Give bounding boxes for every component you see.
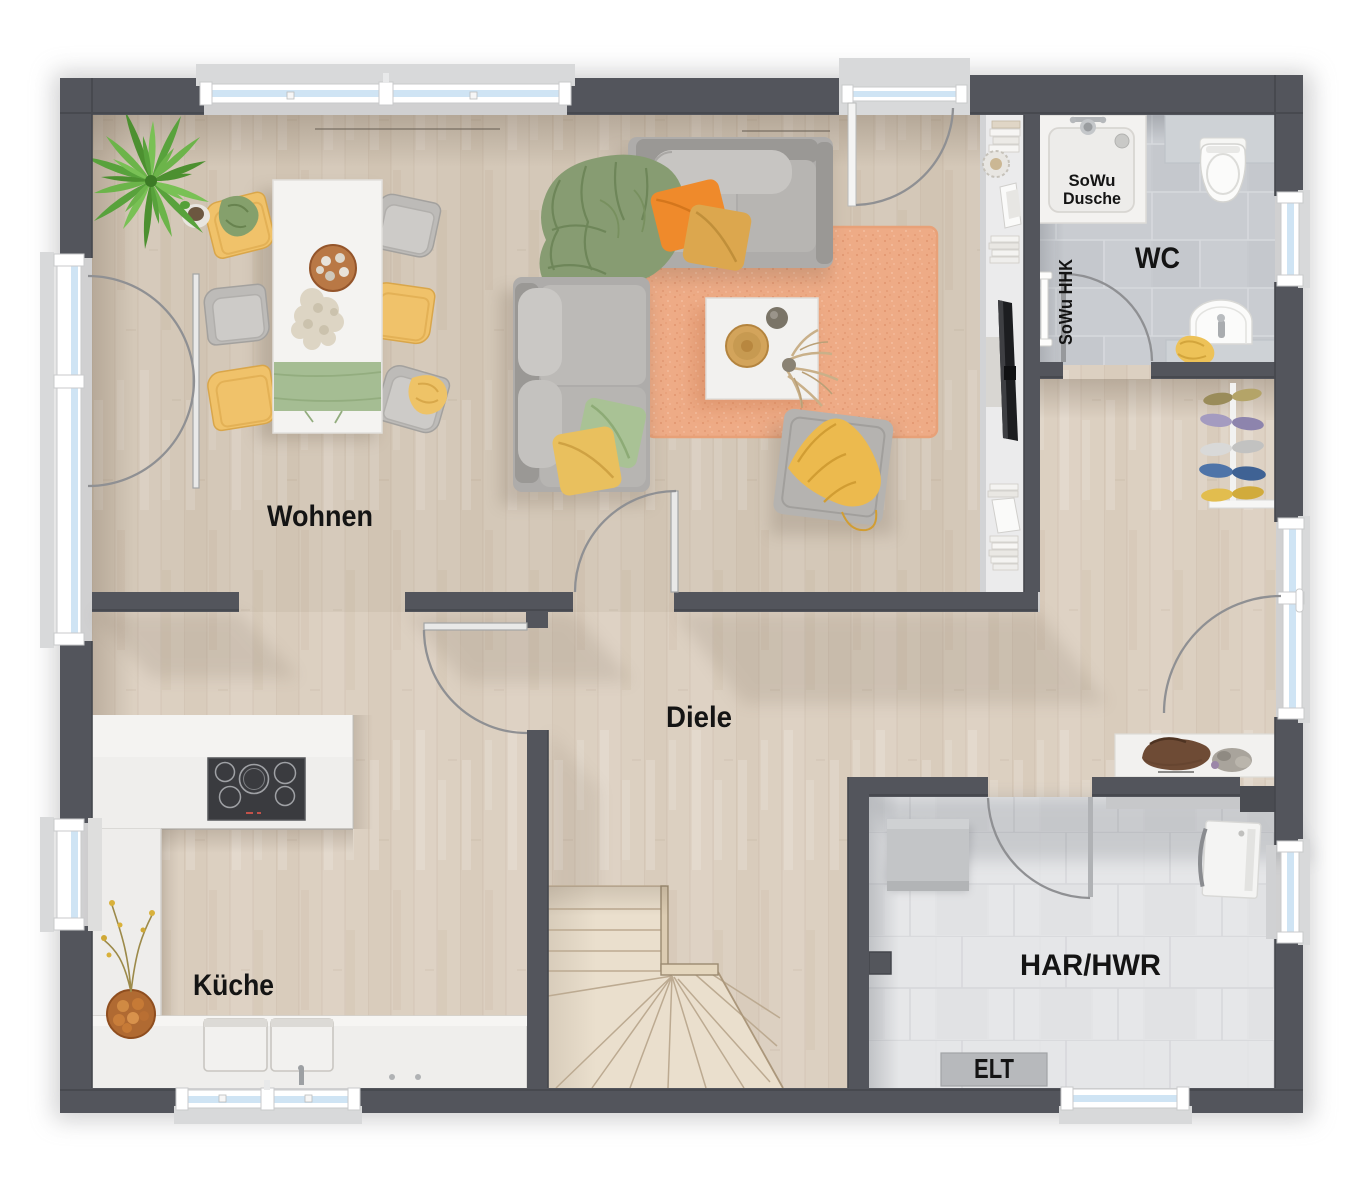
svg-text:SoWu: SoWu <box>1069 171 1116 190</box>
svg-text:Dusche: Dusche <box>1063 189 1121 208</box>
svg-text:Diele: Diele <box>666 701 732 734</box>
svg-text:ELT: ELT <box>974 1053 1014 1084</box>
svg-text:Küche: Küche <box>193 969 274 1002</box>
svg-text:HAR/HWR: HAR/HWR <box>1020 949 1161 982</box>
svg-text:Wohnen: Wohnen <box>267 500 373 533</box>
svg-text:WC: WC <box>1135 242 1180 275</box>
svg-text:SoWu HHK: SoWu HHK <box>1056 259 1076 345</box>
